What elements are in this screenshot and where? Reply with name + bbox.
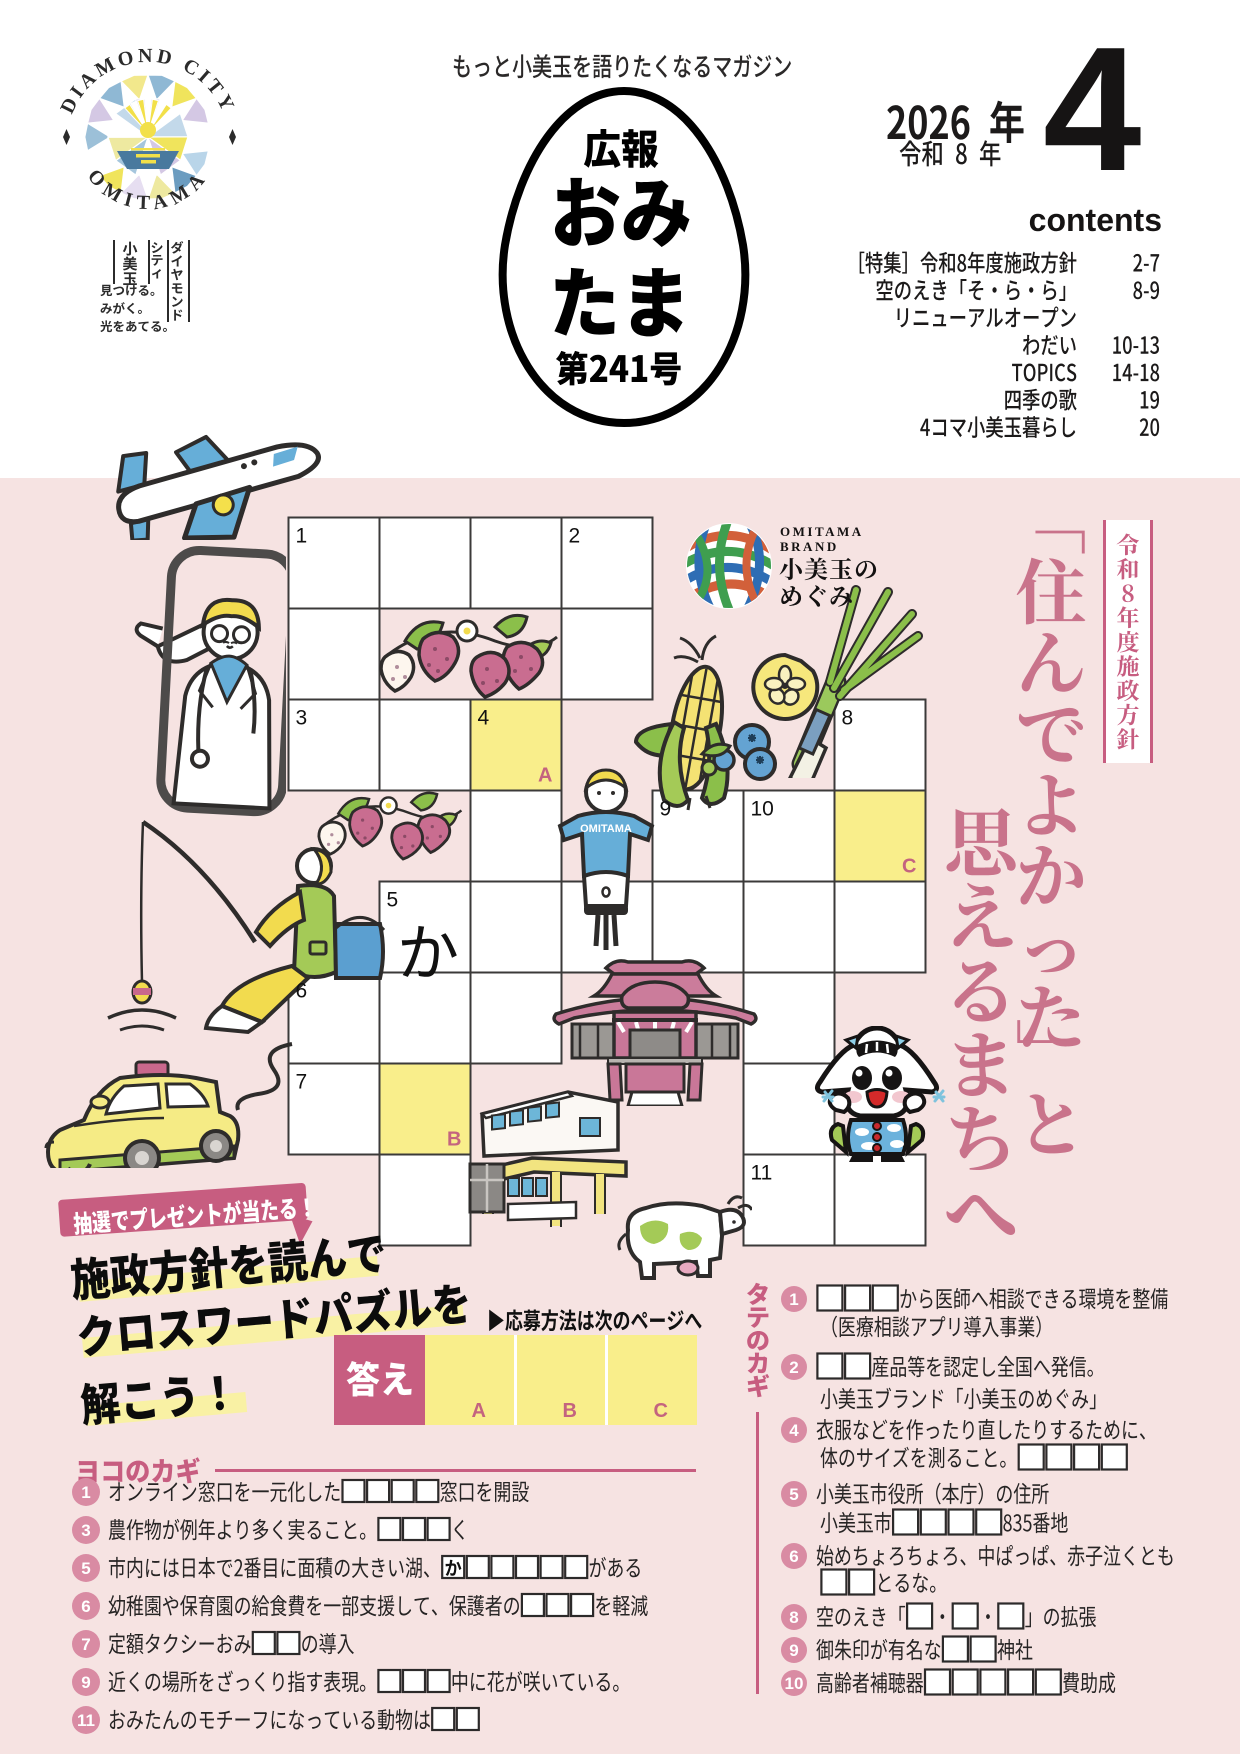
svg-text:4: 4 bbox=[789, 1421, 799, 1440]
svg-text:1: 1 bbox=[789, 1290, 798, 1309]
svg-text:9: 9 bbox=[660, 798, 672, 821]
svg-text:1: 1 bbox=[81, 1483, 90, 1502]
svg-text:11: 11 bbox=[77, 1711, 95, 1730]
svg-text:3: 3 bbox=[81, 1521, 90, 1540]
svg-text:6: 6 bbox=[789, 1547, 798, 1566]
svg-text:9: 9 bbox=[81, 1673, 90, 1692]
svg-text:7: 7 bbox=[81, 1635, 90, 1654]
svg-text:10: 10 bbox=[751, 798, 774, 821]
svg-text:2: 2 bbox=[789, 1358, 798, 1377]
svg-text:5: 5 bbox=[81, 1559, 90, 1578]
svg-text:9: 9 bbox=[789, 1641, 798, 1660]
svg-text:8: 8 bbox=[789, 1608, 798, 1627]
svg-text:8: 8 bbox=[842, 707, 854, 730]
svg-text:5: 5 bbox=[387, 889, 399, 912]
svg-text:B: B bbox=[447, 1129, 461, 1151]
svg-text:1: 1 bbox=[296, 525, 308, 548]
svg-text:A: A bbox=[538, 765, 552, 787]
svg-text:2: 2 bbox=[569, 525, 581, 548]
svg-text:10: 10 bbox=[785, 1674, 804, 1693]
svg-text:3: 3 bbox=[296, 707, 308, 730]
svg-text:11: 11 bbox=[751, 1162, 773, 1185]
svg-text:C: C bbox=[902, 856, 916, 878]
svg-text:5: 5 bbox=[789, 1485, 798, 1504]
svg-text:7: 7 bbox=[296, 1071, 308, 1094]
svg-text:4: 4 bbox=[478, 707, 490, 730]
svg-text:6: 6 bbox=[296, 980, 308, 1003]
svg-text:6: 6 bbox=[81, 1597, 90, 1616]
